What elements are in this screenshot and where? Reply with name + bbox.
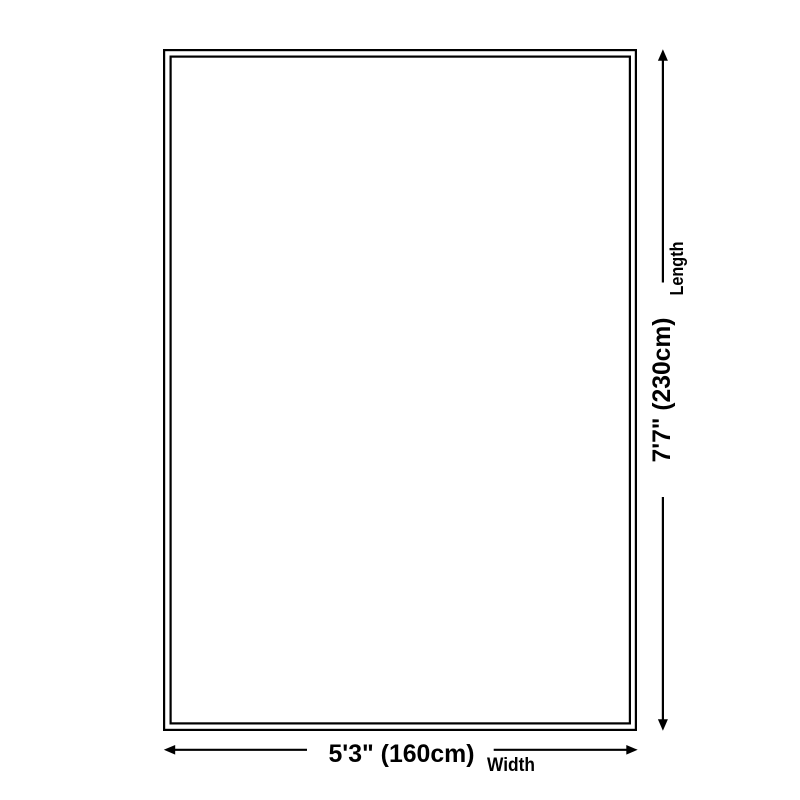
svg-text:7'7" (230cm): 7'7" (230cm) — [648, 318, 676, 463]
svg-text:Length: Length — [667, 242, 687, 296]
svg-text:5'3" (160cm): 5'3" (160cm) — [329, 740, 475, 768]
svg-text:Width: Width — [487, 755, 535, 776]
